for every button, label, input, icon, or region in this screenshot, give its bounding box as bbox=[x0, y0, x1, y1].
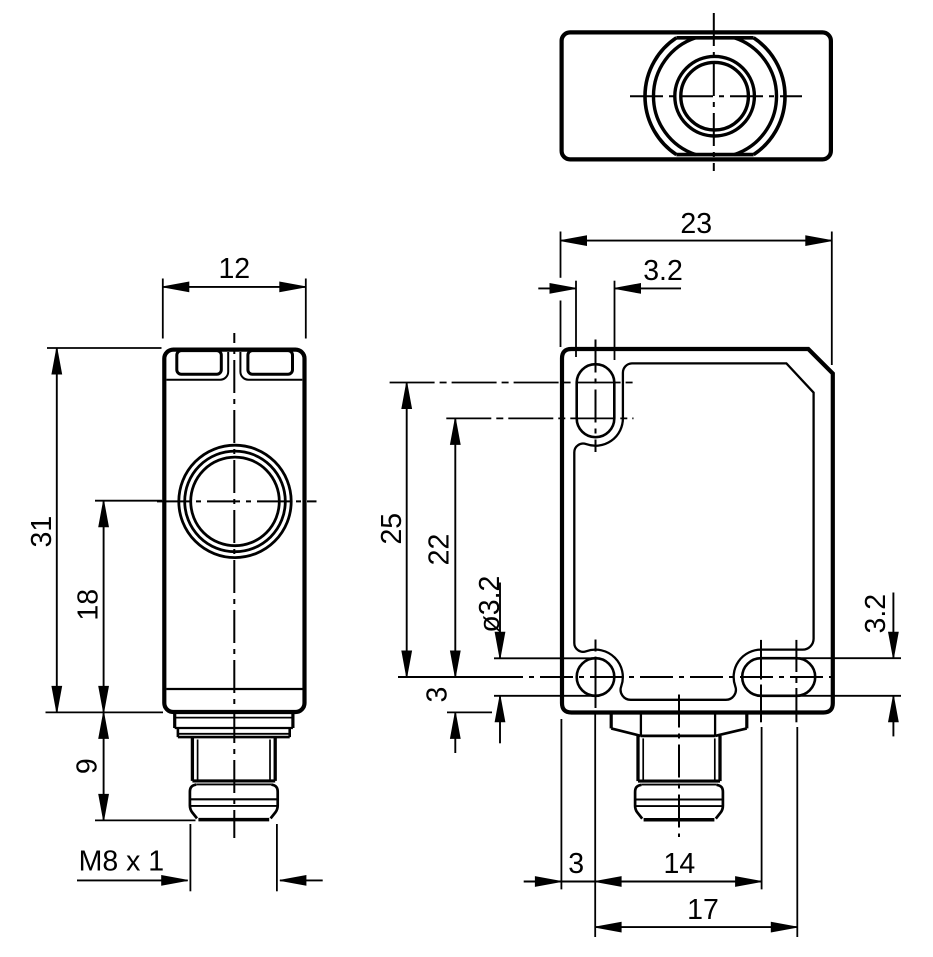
svg-text:17: 17 bbox=[687, 894, 719, 926]
svg-text:9: 9 bbox=[71, 758, 103, 774]
svg-text:3: 3 bbox=[568, 848, 584, 880]
svg-text:ø3.2: ø3.2 bbox=[474, 576, 506, 633]
svg-text:18: 18 bbox=[72, 589, 104, 621]
svg-text:12: 12 bbox=[218, 253, 250, 285]
svg-text:14: 14 bbox=[664, 848, 696, 880]
svg-text:31: 31 bbox=[26, 516, 58, 548]
svg-text:3.2: 3.2 bbox=[643, 255, 683, 287]
svg-text:3.2: 3.2 bbox=[860, 594, 892, 634]
svg-text:22: 22 bbox=[423, 534, 455, 566]
svg-text:3: 3 bbox=[422, 687, 454, 703]
svg-text:23: 23 bbox=[680, 208, 712, 240]
svg-text:M8 x 1: M8 x 1 bbox=[79, 845, 165, 877]
svg-text:25: 25 bbox=[376, 513, 408, 545]
